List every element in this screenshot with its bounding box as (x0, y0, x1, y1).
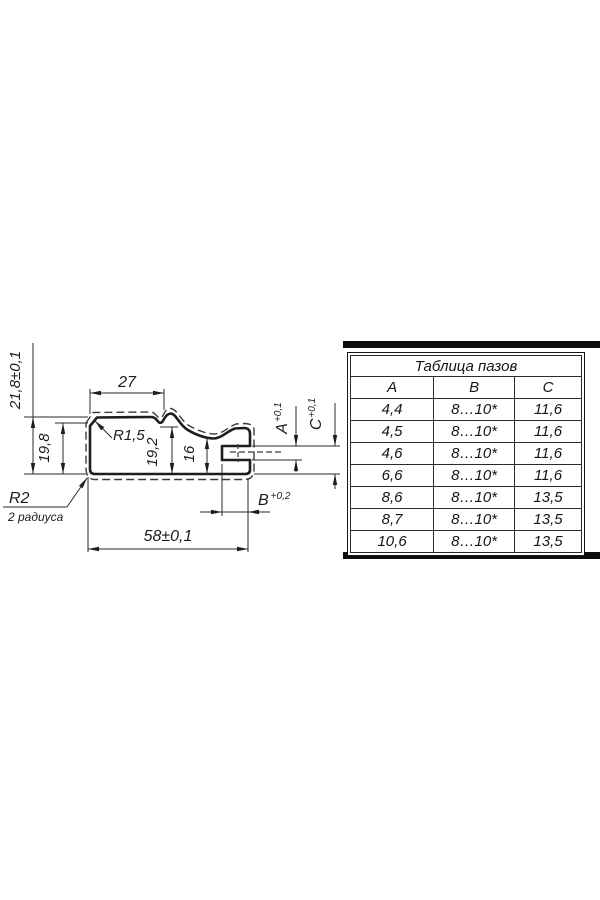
table-row: 4,6 8…10* 11,6 (351, 443, 582, 465)
drawing-sheet: 21,8±0,1 19,8 27 R1,5 19,2 16 A+0,1 C+0,… (0, 0, 600, 900)
col-header-b: B (434, 377, 515, 399)
dim-left-height: 19,8 (36, 433, 53, 463)
table-cell: 8…10* (434, 421, 515, 443)
table-row: 8,6 8…10* 13,5 (351, 487, 582, 509)
table-cell: 4,4 (351, 399, 434, 421)
table-cell: 13,5 (515, 531, 582, 553)
table-row: 10,6 8…10* 13,5 (351, 531, 582, 553)
table-cell: 8…10* (434, 487, 515, 509)
table-cell: 13,5 (515, 509, 582, 531)
table-cell: 4,5 (351, 421, 434, 443)
table-cell: 8,7 (351, 509, 434, 531)
dim-nose-height: 16 (181, 445, 198, 462)
table-cell: 8…10* (434, 399, 515, 421)
table-cell: 4,6 (351, 443, 434, 465)
table-cell: 8,6 (351, 487, 434, 509)
table-cell: 6,6 (351, 465, 434, 487)
table-cell: 11,6 (515, 465, 582, 487)
col-header-c: C (515, 377, 582, 399)
table-row: 8,7 8…10* 13,5 (351, 509, 582, 531)
table-title: Таблица пазов (351, 356, 582, 377)
groove-table: Таблица пазов A B C 4,4 8…10* 11,6 4,5 8… (350, 355, 582, 553)
dim-slot-c: C+0,1 (307, 398, 325, 430)
col-header-a: A (351, 377, 434, 399)
dim-radius-bottom: R2 (9, 490, 30, 507)
table-cell: 8…10* (434, 531, 515, 553)
table-cell: 10,6 (351, 531, 434, 553)
table-cell: 11,6 (515, 443, 582, 465)
table-cell: 8…10* (434, 509, 515, 531)
groove-table-wrap: Таблица пазов A B C 4,4 8…10* 11,6 4,5 8… (347, 352, 585, 556)
table-row: 6,6 8…10* 11,6 (351, 465, 582, 487)
dim-step-height: 19,2 (144, 437, 161, 467)
table-cell: 11,6 (515, 421, 582, 443)
dim-total-height: 21,8±0,1 (7, 351, 24, 410)
dim-slot-b: B+0,2 (258, 491, 291, 509)
table-cell: 13,5 (515, 487, 582, 509)
dim-radius-note: 2 радиуса (7, 510, 64, 524)
table-row: 4,4 8…10* 11,6 (351, 399, 582, 421)
table-cell: 8…10* (434, 443, 515, 465)
dim-top-width: 27 (117, 374, 137, 391)
dim-radius-top: R1,5 (113, 427, 145, 444)
sheet-frame-top-bar (343, 341, 600, 348)
dim-slot-a: A+0,1 (273, 402, 291, 434)
table-header-row: A B C (351, 377, 582, 399)
table-row: 4,5 8…10* 11,6 (351, 421, 582, 443)
table-cell: 11,6 (515, 399, 582, 421)
dim-bottom-width: 58±0,1 (144, 528, 193, 545)
table-cell: 8…10* (434, 465, 515, 487)
